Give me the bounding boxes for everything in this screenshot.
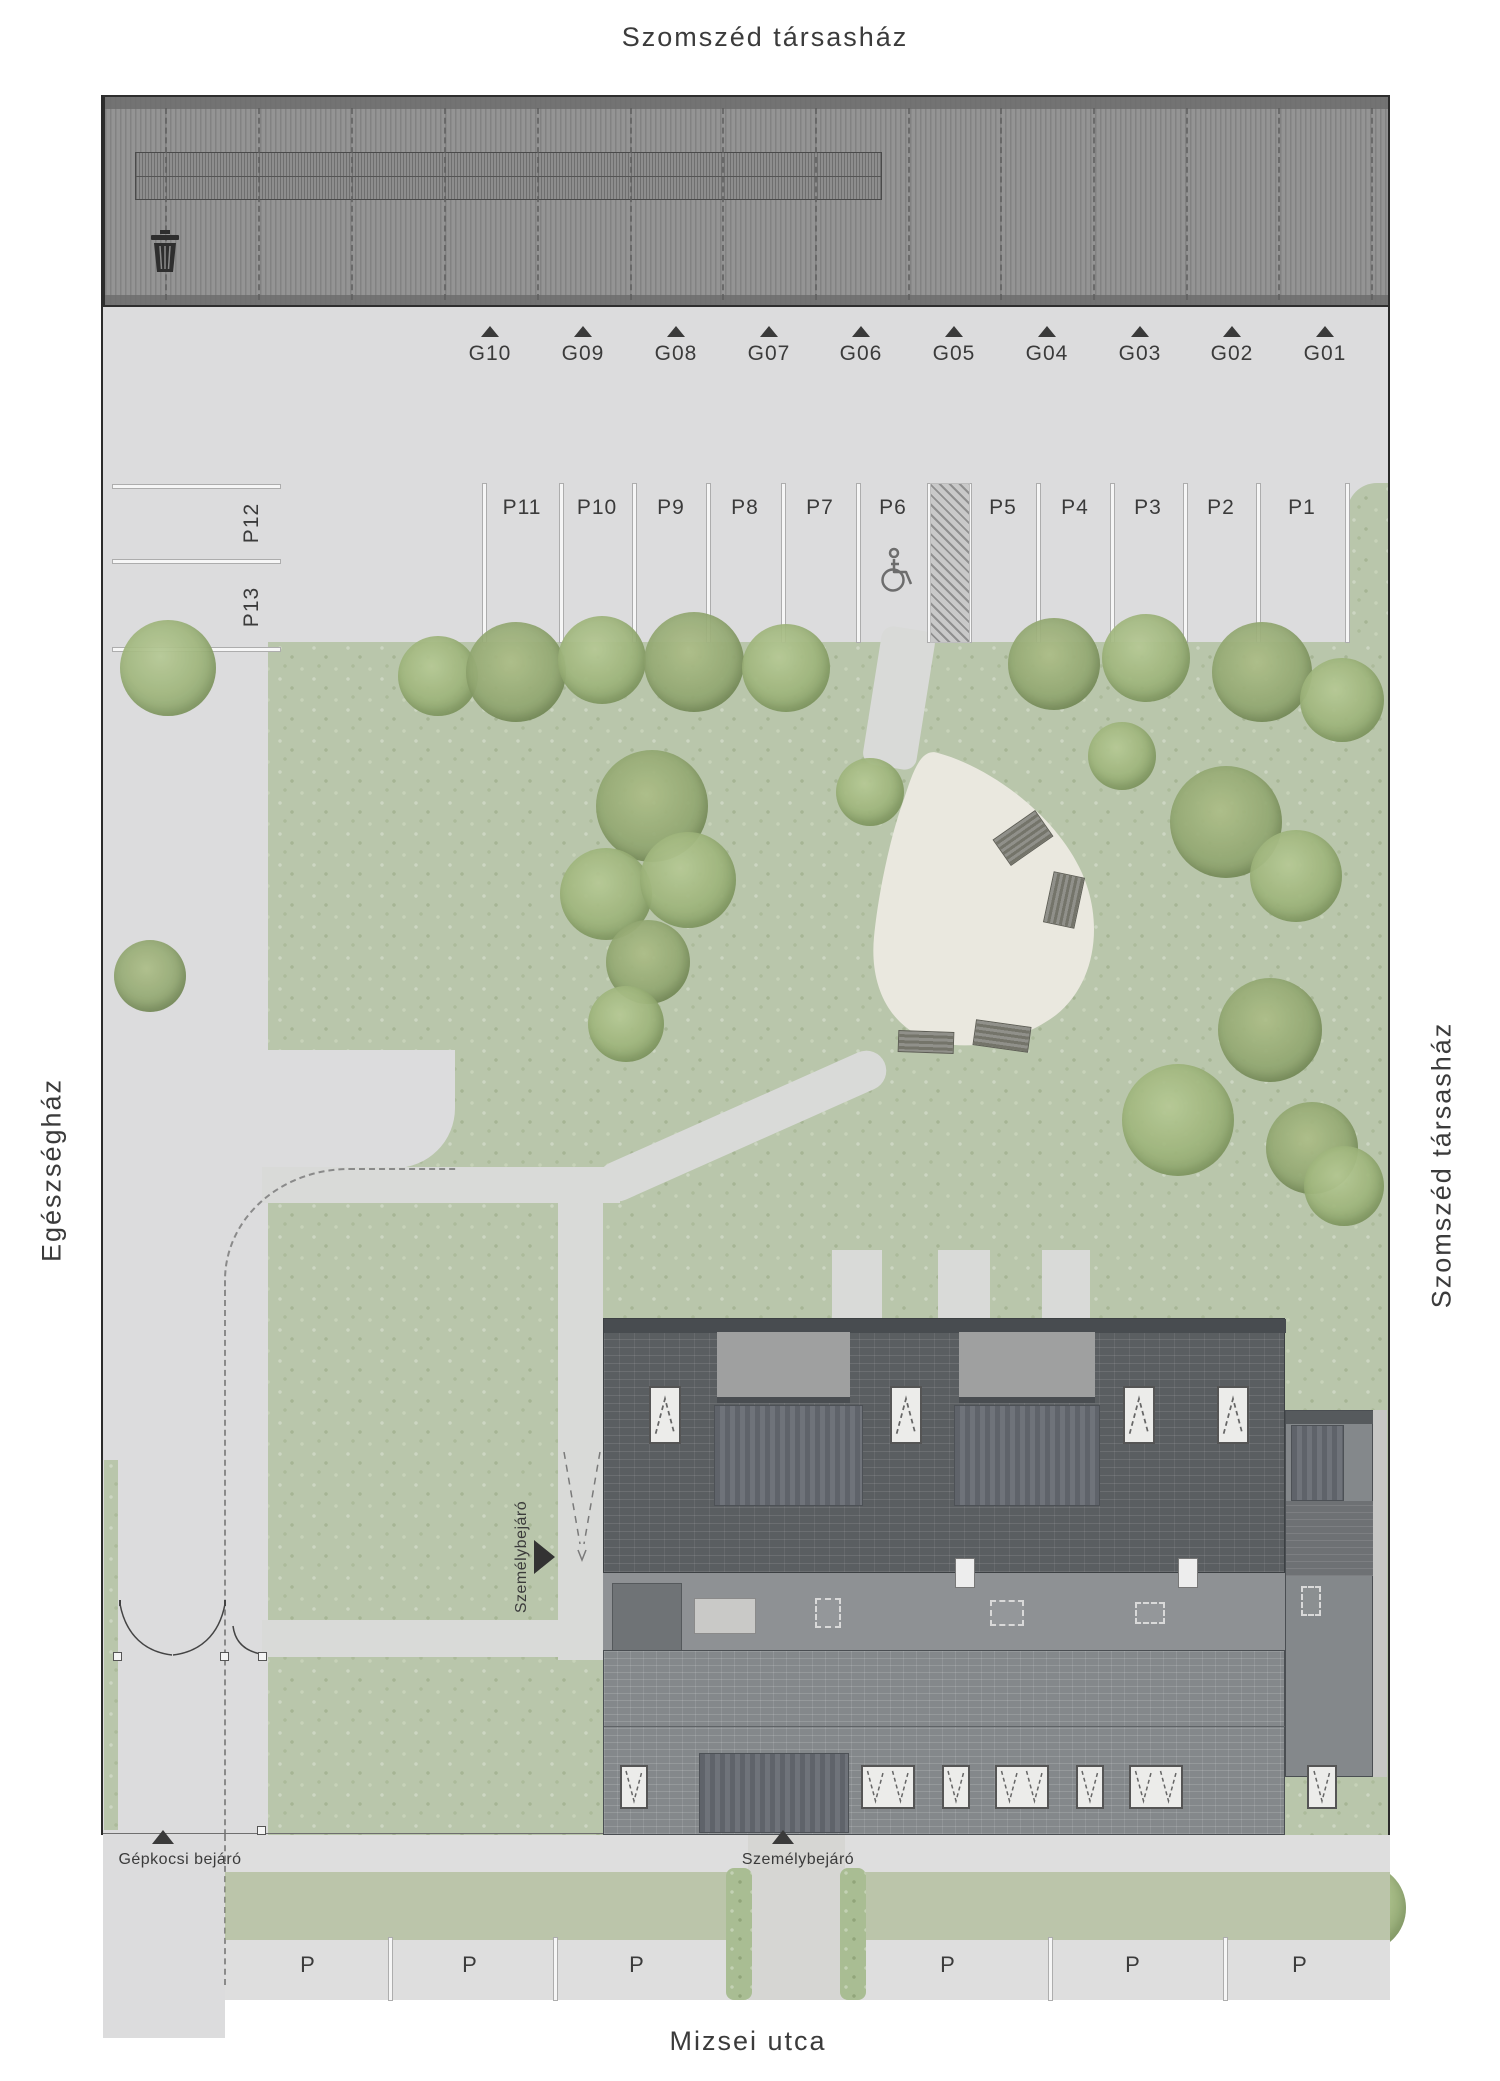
garage-stall-label: G01 (1304, 342, 1347, 366)
building-connector-path (832, 1250, 882, 1320)
pedestrian-entrance-side-label: Személybejáró (513, 1501, 531, 1613)
garage-stall-label: G05 (933, 342, 976, 366)
parking-stall-label: P4 (1061, 496, 1089, 520)
street-parking-label: P (1292, 1952, 1308, 1978)
gate-post (220, 1652, 229, 1661)
garage-divider-line (630, 108, 632, 300)
bush (840, 1868, 866, 2000)
window-sash-icon (1125, 1388, 1153, 1442)
street-parking-label: P (462, 1952, 478, 1978)
garage-divider-line (1093, 108, 1095, 300)
gate-post (258, 1652, 267, 1661)
parking-stall-label: P8 (731, 496, 759, 520)
driveway-wide-area (103, 1050, 455, 1168)
canopy-marking (556, 1452, 608, 1564)
chimney (1178, 1558, 1198, 1588)
lower-window (1129, 1765, 1183, 1809)
garage-divider-line (722, 108, 724, 300)
tree (644, 612, 744, 712)
tree (558, 616, 646, 704)
street-parking-label: P (629, 1952, 645, 1978)
window-sash-icon (1309, 1767, 1335, 1807)
parking-stall-line (483, 484, 486, 642)
pedestrian-entrance-arrow-icon (772, 1830, 794, 1844)
tree (836, 758, 904, 826)
parking-stall-line (633, 484, 636, 642)
garage-door-arrow-icon (1316, 326, 1334, 337)
garage-door-arrow-icon (1131, 326, 1149, 337)
garage-stall-label: G08 (655, 342, 698, 366)
vehicle-gate (112, 1598, 272, 1662)
roof-ridge (604, 1319, 1286, 1333)
parking-stall-line (1184, 484, 1187, 642)
roof-window (1123, 1386, 1155, 1444)
garage-door-arrow-icon (667, 326, 685, 337)
street-parking-line (389, 1938, 392, 2000)
wheelchair-accessible-icon (878, 546, 918, 594)
garage-stall-label: G02 (1211, 342, 1254, 366)
roof-terrace (959, 1332, 1095, 1403)
site-plan: Szomszéd társasház G10G09G08G07G06G05G04… (0, 0, 1500, 2081)
tree (466, 622, 566, 722)
lower-window (620, 1765, 648, 1809)
window-sash-icon (888, 1767, 913, 1807)
roof-seam (604, 1726, 1286, 1727)
garage-door-arrow-icon (760, 326, 778, 337)
gate-post (113, 1652, 122, 1661)
garage-divider-line (815, 108, 817, 300)
tree (1102, 614, 1190, 702)
window-sash-icon (651, 1388, 679, 1442)
lower-window (942, 1765, 970, 1809)
roof-deck-stripes (954, 1405, 1100, 1506)
tree (1304, 1146, 1384, 1226)
skylight-hatch (1135, 1602, 1165, 1624)
roof-terrace (717, 1332, 850, 1403)
fence-post (257, 1826, 266, 1835)
parking-stall-label: P11 (503, 496, 542, 520)
side-entrance-arrow-icon (534, 1540, 555, 1574)
street-parking-line (554, 1938, 557, 2000)
parking-stall-label: P5 (989, 496, 1017, 520)
side-parking-stall-line (113, 485, 280, 488)
garage-eave-top (105, 97, 1388, 109)
window-sash-icon (1131, 1767, 1156, 1807)
tree (120, 620, 216, 716)
lower-window (1076, 1765, 1104, 1809)
entrance-walkway (558, 1167, 603, 1660)
no-parking-hatch (931, 484, 969, 642)
skylight-hatch (990, 1600, 1024, 1626)
garage-stall-label: G07 (748, 342, 791, 366)
tree (1250, 830, 1342, 922)
parking-stall-label: P1 (1288, 496, 1316, 520)
garage-divider-line (908, 108, 910, 300)
skylight (694, 1598, 756, 1634)
wing-dark-roof (1286, 1501, 1374, 1576)
tree (1008, 618, 1100, 710)
window-sash-icon (1078, 1767, 1102, 1807)
street-parking-label: P (300, 1952, 316, 1978)
garage-divider-line (1371, 108, 1373, 300)
garage-divider-line (537, 108, 539, 300)
roof-window (649, 1386, 681, 1444)
parking-stall-line (1346, 484, 1349, 642)
lower-window (1307, 1765, 1337, 1809)
garage-stall-label: G06 (840, 342, 883, 366)
parking-apron-pavement (103, 305, 1390, 642)
green-corner (1347, 483, 1390, 642)
parking-stall-line (1111, 484, 1114, 642)
street-parking-line (1049, 1938, 1052, 2000)
lower-window (995, 1765, 1049, 1809)
wing-ridge (1286, 1411, 1374, 1424)
vehicle-entrance-label: Gépkocsi bejáró (118, 1851, 241, 1869)
side-parking-stall-line (113, 560, 280, 563)
garage-divider-line (258, 108, 260, 300)
garage-door-arrow-icon (945, 326, 963, 337)
garage-door-arrow-icon (574, 326, 592, 337)
site-edge-bottom (103, 1833, 603, 1834)
parking-stall-line (782, 484, 785, 642)
entrance-deck-stripes (699, 1753, 849, 1833)
vehicle-entrance-arrow-icon (152, 1830, 174, 1844)
building-connector-path (1042, 1250, 1090, 1320)
tree (1300, 658, 1384, 742)
garage-divider-line (444, 108, 446, 300)
lower-window (861, 1765, 915, 1809)
garage-door-arrow-icon (1223, 326, 1241, 337)
side-parking-stall-label: P13 (240, 587, 264, 627)
window-sash-icon (1022, 1767, 1047, 1807)
parking-stall-label: P7 (806, 496, 834, 520)
wing-skylight (1301, 1586, 1321, 1616)
street-parking-line (1224, 1938, 1227, 2000)
street-parking-label: P (940, 1952, 956, 1978)
tree (588, 986, 664, 1062)
window-sash-icon (1156, 1767, 1181, 1807)
gate-footpath (262, 1620, 603, 1657)
bush (726, 1868, 752, 2000)
roof-deck-stripes (714, 1405, 863, 1506)
tree (114, 940, 186, 1012)
wing-deck-stripes (1291, 1425, 1344, 1501)
garage-divider-line (1278, 108, 1280, 300)
window-sash-icon (622, 1767, 646, 1807)
street-parking-label: P (1125, 1952, 1141, 1978)
wing-edge-strip (1373, 1410, 1387, 1777)
building-wing (1285, 1410, 1373, 1777)
building-connector-path (938, 1250, 990, 1320)
window-sash-icon (944, 1767, 968, 1807)
parking-stall-line (560, 484, 563, 642)
garage-door-arrow-icon (852, 326, 870, 337)
garage-eave-bottom (105, 295, 1388, 305)
trash-icon (148, 230, 182, 274)
right-neighbor-label: Szomszéd társasház (1427, 1022, 1458, 1309)
street-name-label: Mizsei utca (669, 2026, 826, 2057)
parking-stall-label: P10 (577, 496, 617, 520)
garage-stall-label: G04 (1026, 342, 1069, 366)
chimney (955, 1558, 975, 1588)
window-sash-icon (892, 1388, 920, 1442)
window-sash-icon (997, 1767, 1022, 1807)
parking-stall-line (1257, 484, 1260, 642)
garage-building (103, 95, 1390, 307)
garage-divider-line (1000, 108, 1002, 300)
parking-stall-line (1037, 484, 1040, 642)
tree (1088, 722, 1156, 790)
site-boundary-left (101, 95, 103, 1835)
garage-divider-line (351, 108, 353, 300)
garage-divider-line (1186, 108, 1188, 300)
parking-stall-line (857, 484, 860, 642)
parking-stall-label: P2 (1207, 496, 1235, 520)
hedge-band (845, 1872, 1390, 1940)
parking-stall-label: P6 (879, 496, 907, 520)
pedestrian-entrance-street-label: Személybejáró (742, 1851, 854, 1869)
building-roof (603, 1318, 1285, 1573)
roof-window (1217, 1386, 1249, 1444)
left-neighbor-label: Egészségház (37, 1078, 68, 1262)
tree (1122, 1064, 1234, 1176)
bench (898, 1030, 955, 1054)
tree (640, 832, 736, 928)
garage-stall-label: G09 (562, 342, 605, 366)
parking-stall-label: P9 (657, 496, 685, 520)
skylight-hatch (815, 1598, 841, 1628)
garage-stall-label: G03 (1119, 342, 1162, 366)
window-sash-icon (863, 1767, 888, 1807)
garage-rooflight-strip (135, 152, 882, 200)
roof-window (890, 1386, 922, 1444)
garage-door-arrow-icon (481, 326, 499, 337)
side-parking-stall-label: P12 (240, 503, 264, 543)
parking-stall-label: P3 (1134, 496, 1162, 520)
tree (1218, 978, 1322, 1082)
garage-stall-label: G10 (469, 342, 512, 366)
hedge-band (225, 1872, 748, 1940)
tree (1212, 622, 1312, 722)
tree (742, 624, 830, 712)
residential-building (603, 1318, 1390, 1835)
top-neighbor-label: Szomszéd társasház (622, 22, 909, 53)
window-sash-icon (1219, 1388, 1247, 1442)
garage-door-arrow-icon (1038, 326, 1056, 337)
